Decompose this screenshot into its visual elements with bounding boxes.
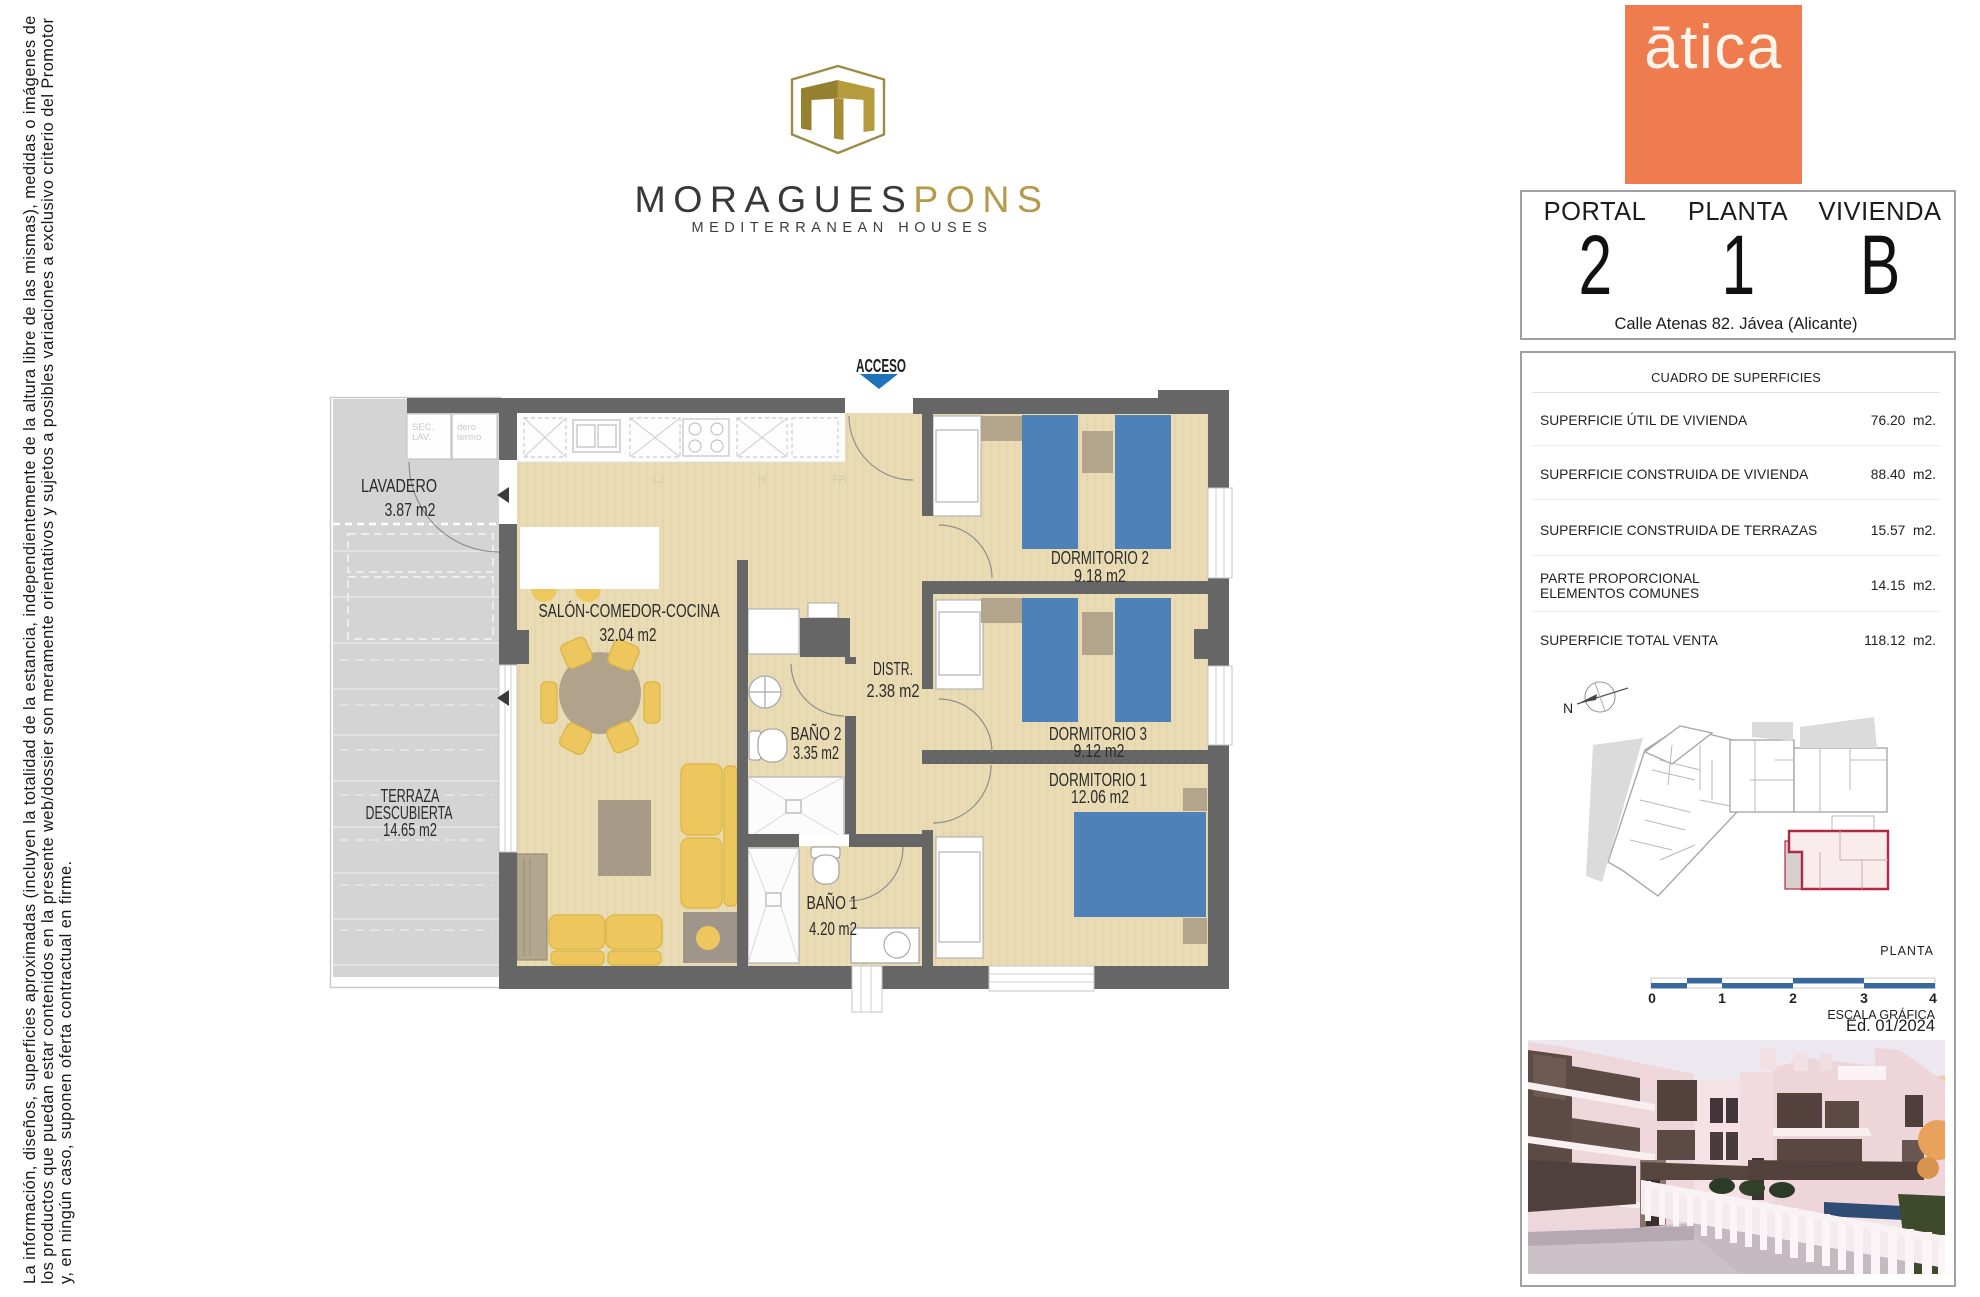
svg-text:14.65 m2: 14.65 m2 [383,820,437,840]
svg-text:LJ: LJ [652,474,664,486]
svg-text:termo: termo [457,432,481,443]
svg-text:LAVADERO: LAVADERO [361,476,437,496]
svg-text:12.06 m2: 12.06 m2 [1071,787,1129,807]
svg-text:9.12 m2: 9.12 m2 [1074,741,1125,761]
svg-text:3.87 m2: 3.87 m2 [385,500,436,520]
svg-text:9.18 m2: 9.18 m2 [1074,566,1126,586]
svg-text:SALÓN-COMEDOR-COCINA: SALÓN-COMEDOR-COCINA [539,600,720,621]
svg-text:0: 0 [1648,990,1656,1006]
svg-text:32.04 m2: 32.04 m2 [600,625,657,645]
svg-text:3.35 m2: 3.35 m2 [793,743,839,763]
svg-text:3: 3 [1860,990,1868,1006]
svg-text:H: H [758,474,766,486]
svg-text:DORMITORIO 2: DORMITORIO 2 [1051,548,1149,568]
svg-text:Ed. 01/2024: Ed. 01/2024 [1846,1017,1935,1035]
svg-text:PLANTA: PLANTA [1880,944,1934,958]
svg-text:ACCESO: ACCESO [856,356,906,376]
svg-text:DISTR.: DISTR. [873,659,913,679]
svg-text:1: 1 [1718,990,1726,1006]
svg-text:4: 4 [1929,990,1937,1006]
svg-text:4.20 m2: 4.20 m2 [809,919,857,939]
svg-text:BAÑO 2: BAÑO 2 [791,723,842,744]
svg-text:BAÑO 1: BAÑO 1 [807,892,858,913]
svg-text:N: N [1563,700,1573,716]
svg-text:2.38 m2: 2.38 m2 [867,681,920,701]
svg-text:LAV.: LAV. [412,432,431,443]
svg-text:2: 2 [1789,990,1797,1006]
svg-text:FR: FR [832,474,847,486]
